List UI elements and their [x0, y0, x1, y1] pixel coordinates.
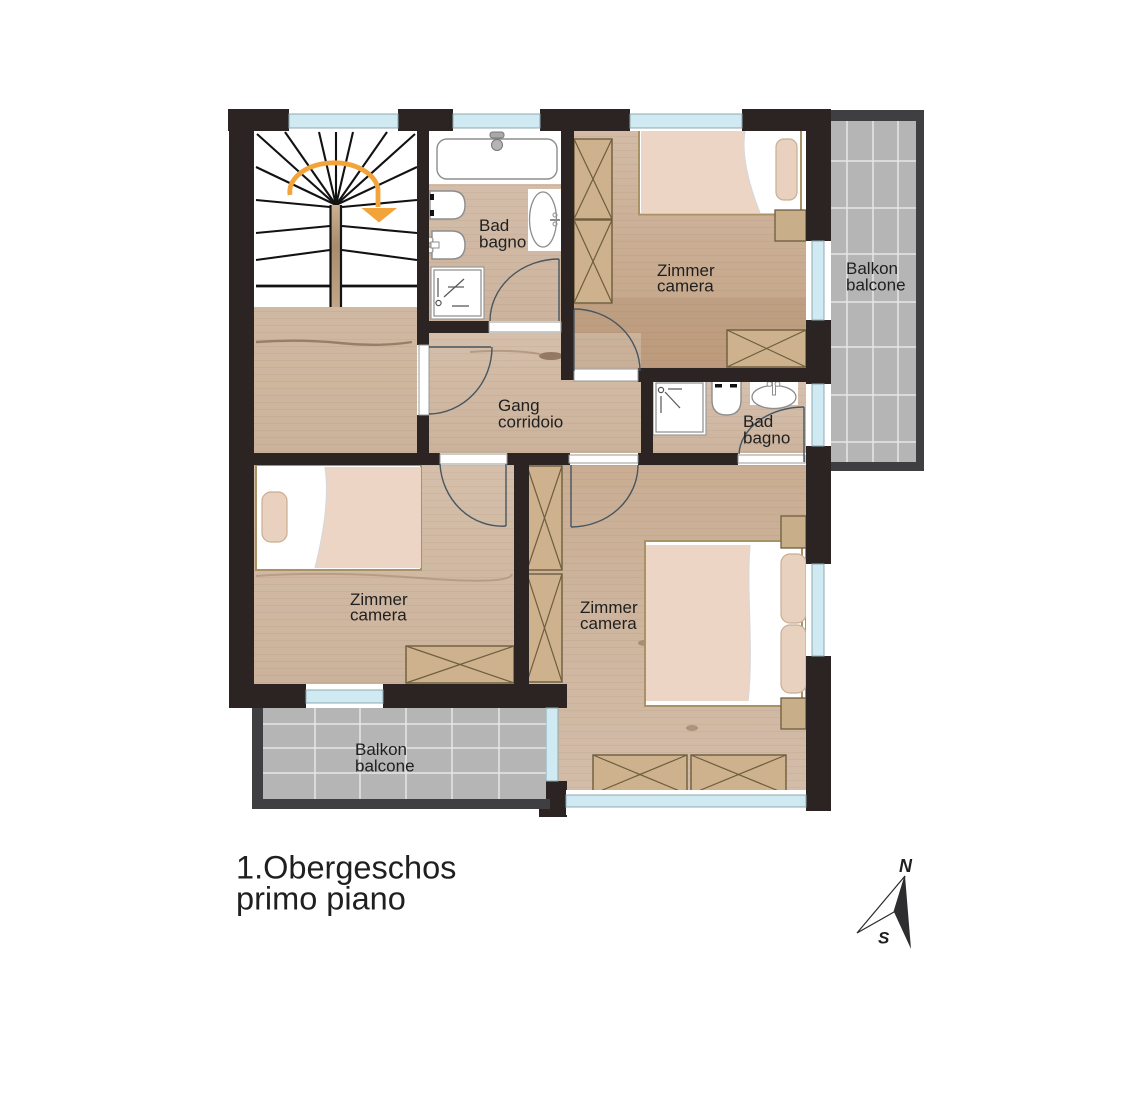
svg-text:camera: camera [657, 277, 714, 296]
svg-text:S: S [878, 929, 890, 948]
svg-text:primo piano: primo piano [236, 881, 406, 917]
svg-text:balcone: balcone [846, 276, 906, 295]
svg-text:corridoio: corridoio [498, 413, 563, 432]
svg-text:bagno: bagno [479, 233, 526, 252]
svg-text:camera: camera [580, 614, 637, 633]
svg-text:camera: camera [350, 606, 407, 625]
svg-text:N: N [899, 856, 913, 876]
svg-text:bagno: bagno [743, 429, 790, 448]
svg-text:balcone: balcone [355, 757, 415, 776]
